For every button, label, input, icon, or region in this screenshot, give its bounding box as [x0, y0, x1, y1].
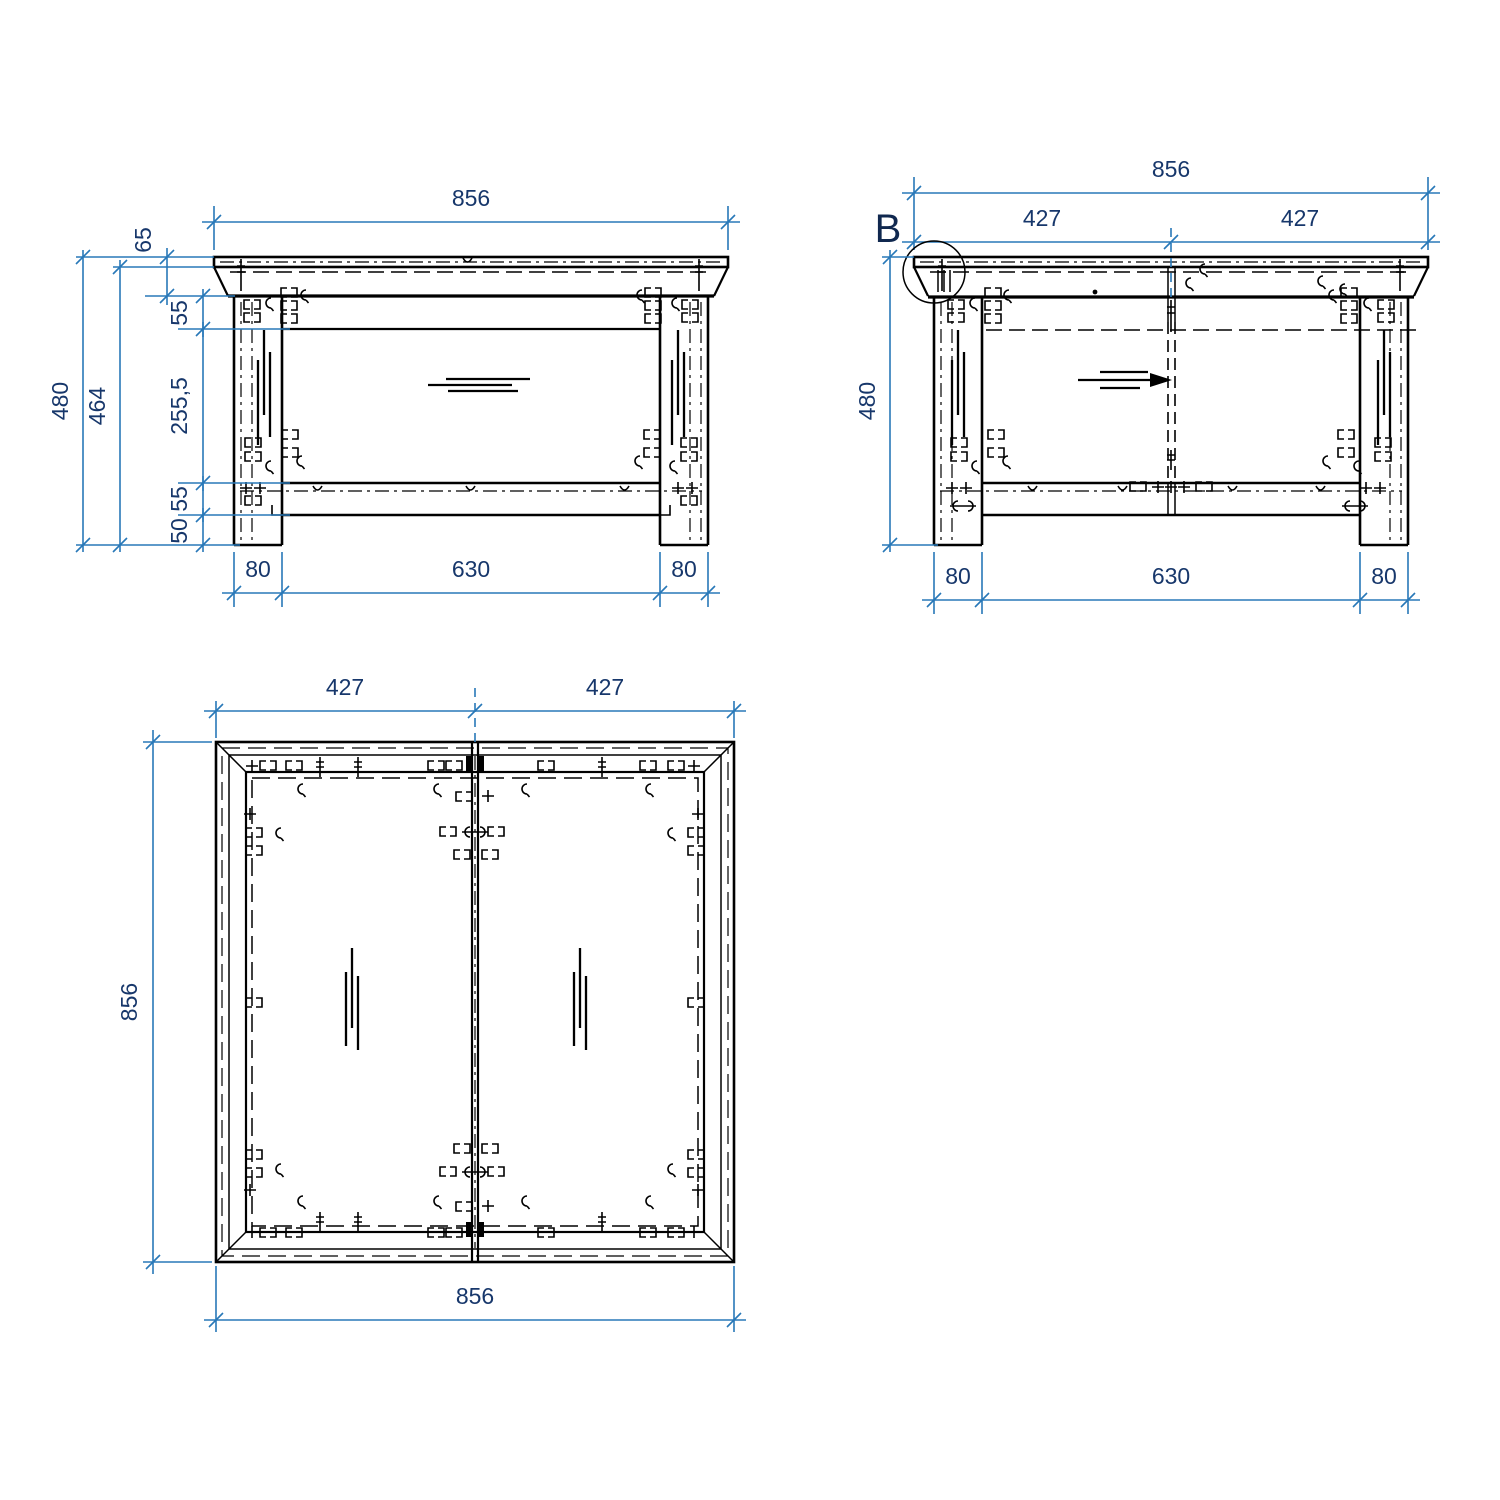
front-view: 856 480 464 65 55 255,5: [47, 185, 740, 607]
plan-dim-width: 856: [456, 1283, 494, 1309]
side-dim-span: 630: [1152, 563, 1190, 589]
front-dim-leg-left: 80: [245, 556, 271, 582]
front-dim-span: 630: [452, 556, 490, 582]
front-dim-height-under-top: 464: [84, 387, 110, 426]
front-dim-top-thickness: 65: [130, 227, 156, 253]
technical-drawing-canvas: 856 480 464 65 55 255,5: [0, 0, 1500, 1500]
plan-hardware-symbols: [244, 756, 704, 1238]
detail-marker-label: B: [875, 207, 902, 251]
front-dimensions: 856 480 464 65 55 255,5: [47, 185, 740, 607]
side-dim-leg-left: 80: [945, 563, 971, 589]
drawing-svg: 856 480 464 65 55 255,5: [0, 0, 1500, 1500]
plan-view: 427 427 856 856: [116, 674, 746, 1332]
side-view: 856 427 427 B 480 80 630 80: [854, 156, 1440, 614]
side-dim-half-right: 427: [1281, 205, 1319, 231]
plan-structure: [216, 742, 734, 1262]
front-dim-rail: 55: [166, 486, 192, 512]
side-dim-width: 856: [1152, 156, 1190, 182]
front-dim-height-total: 480: [47, 382, 73, 420]
front-dim-foot: 50: [166, 518, 192, 544]
plan-dim-half-left: 427: [326, 674, 364, 700]
front-dim-apron: 55: [166, 300, 192, 326]
plan-dim-depth: 856: [116, 983, 142, 1021]
front-dim-leg-right: 80: [671, 556, 697, 582]
front-dim-opening: 255,5: [166, 377, 192, 435]
side-dim-leg-right: 80: [1371, 563, 1397, 589]
plan-dim-half-right: 427: [586, 674, 624, 700]
side-dim-half-left: 427: [1023, 205, 1061, 231]
front-dim-width: 856: [452, 185, 490, 211]
side-dim-height-total: 480: [854, 382, 880, 420]
